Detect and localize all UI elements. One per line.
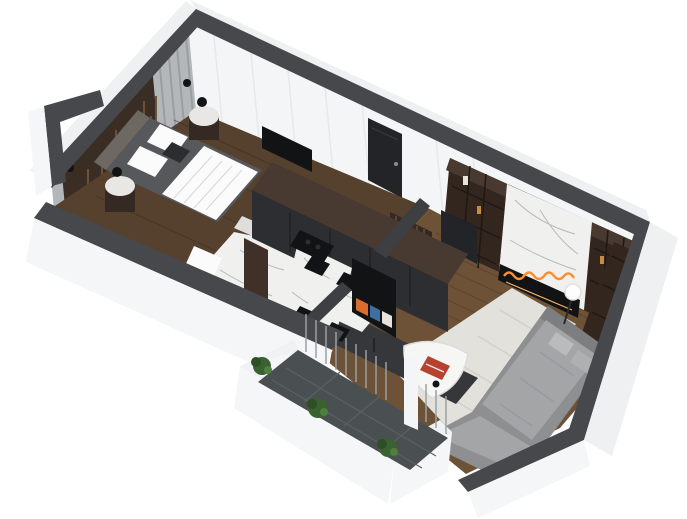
shelf-bottle: [477, 206, 481, 214]
apartment-render: [0, 0, 687, 519]
cup: [433, 381, 440, 388]
burner-2: [316, 245, 321, 250]
burner: [306, 240, 311, 245]
nightstand-marble-top-2: [105, 176, 135, 196]
shelf-vase: [463, 176, 468, 185]
lamp-globe: [565, 284, 581, 300]
nightstand-marble-top: [189, 106, 219, 126]
white-post: [404, 352, 418, 430]
door-handle: [394, 162, 398, 166]
floor-plan-canvas: [0, 0, 687, 519]
sphere-lamp-2: [112, 167, 122, 177]
wall-sconce: [183, 79, 191, 87]
sphere-lamp: [197, 97, 207, 107]
shelf-bottle-2: [600, 256, 604, 264]
